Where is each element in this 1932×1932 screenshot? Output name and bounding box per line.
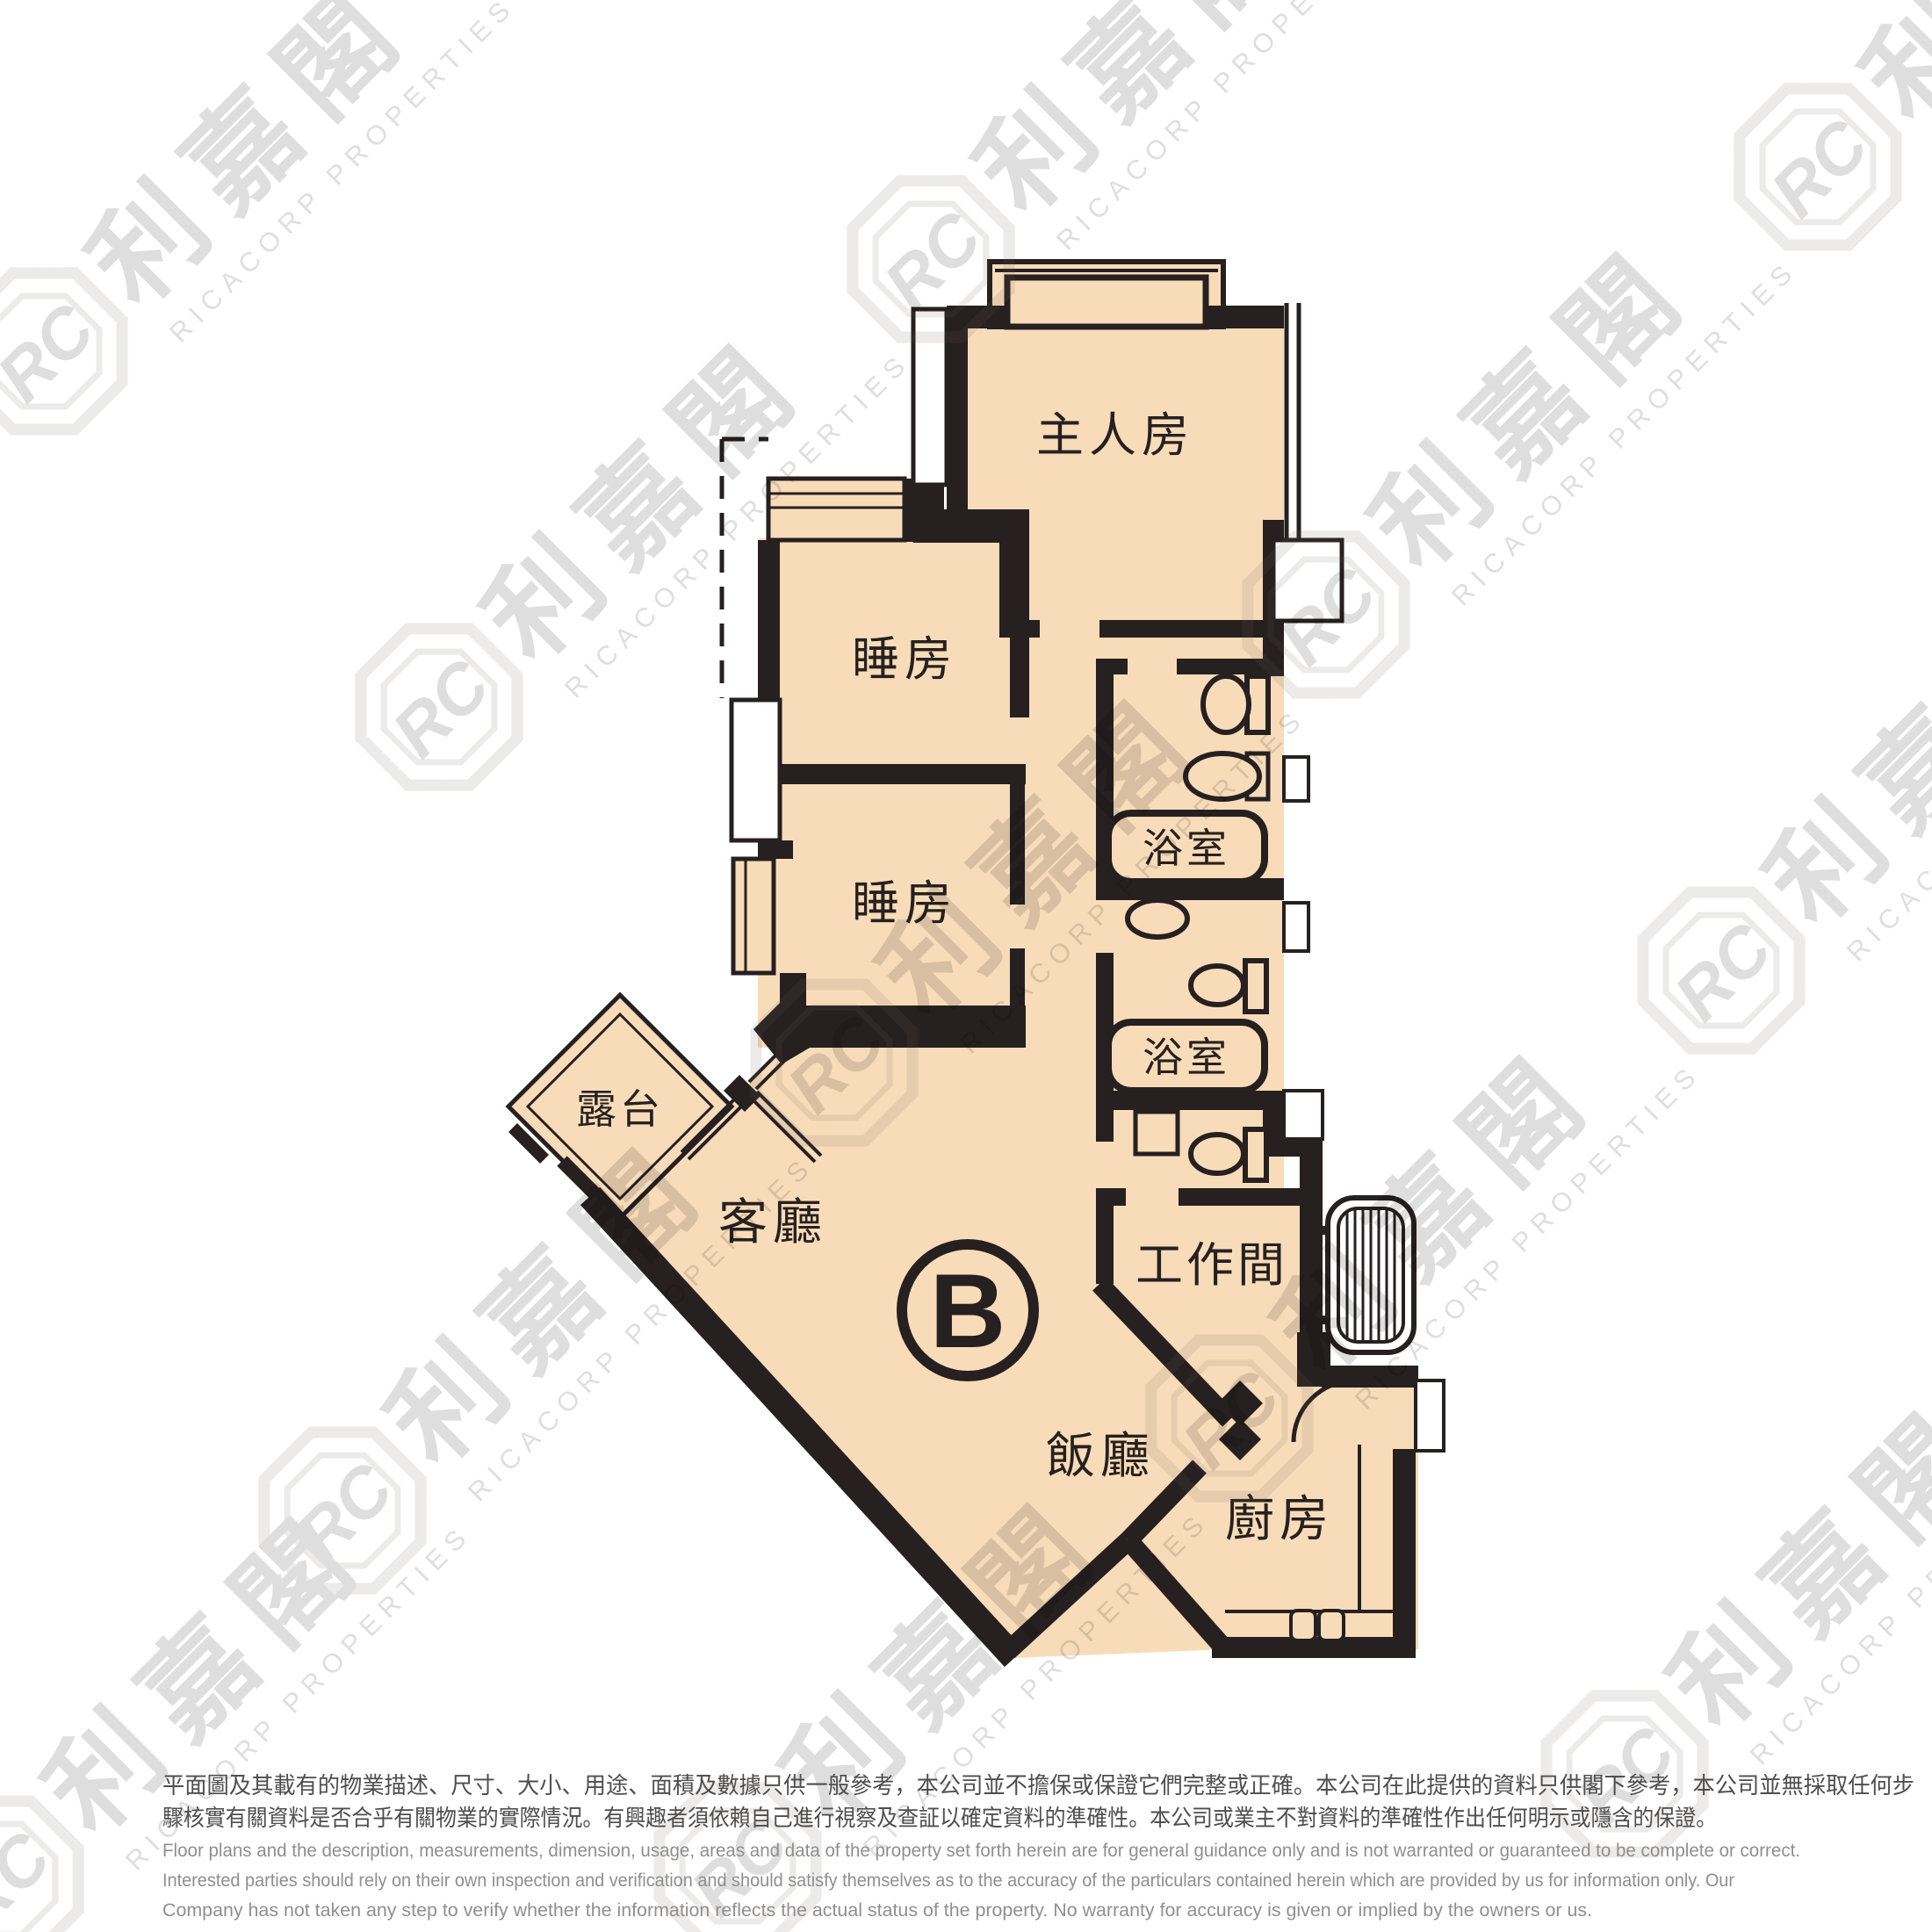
label-master-bedroom: 主人房 (1036, 409, 1194, 462)
unit-label: B (930, 1252, 1006, 1370)
shower-tray-icon (1135, 1112, 1178, 1154)
disclaimer-block: 平面圖及其載有的物業描述、尺寸、大小、用途、面積及數據只供一般參考，本公司並不擔… (162, 1772, 1914, 1921)
floorplan-canvas: 主人房 睡房 睡房 浴室 浴室 露台 客廳 飯廳 工作間 廚房 B RC 利嘉閣… (0, 0, 1932, 1932)
disclaimer-zh-line1: 平面圖及其載有的物業描述、尺寸、大小、用途、面積及數據只供一般參考，本公司並不擔… (162, 1772, 1914, 1799)
disclaimer-en-line2: Interested parties should rely on their … (162, 1870, 1734, 1891)
toilet-icon (1245, 1129, 1266, 1180)
disclaimer-zh-line2: 驟核實有關資料是否合乎有關物業的實際情況。有興趣者須依賴自己進行視察及查証以確定… (162, 1805, 1717, 1831)
label-bathroom-2: 浴室 (1143, 1034, 1230, 1080)
toilet-bowl-icon (1203, 676, 1249, 732)
sink-icon (1319, 1611, 1344, 1640)
watermark-layer (0, 0, 1932, 1932)
toilet-bowl-icon (1191, 1135, 1244, 1173)
label-bedroom-1: 睡房 (852, 633, 957, 686)
label-dining-room: 飯廳 (1046, 1428, 1155, 1483)
sink-icon (1291, 1611, 1316, 1640)
toilet-bowl-icon (1191, 966, 1244, 1005)
toilet-icon (1245, 961, 1266, 1012)
disclaimer-en-line1: Floor plans and the description, measure… (162, 1840, 1800, 1861)
disclaimer-en-line3: Company has not taken any step to verify… (162, 1900, 1592, 1921)
label-work-room: 工作間 (1135, 1239, 1288, 1292)
basin-icon (1128, 900, 1187, 937)
